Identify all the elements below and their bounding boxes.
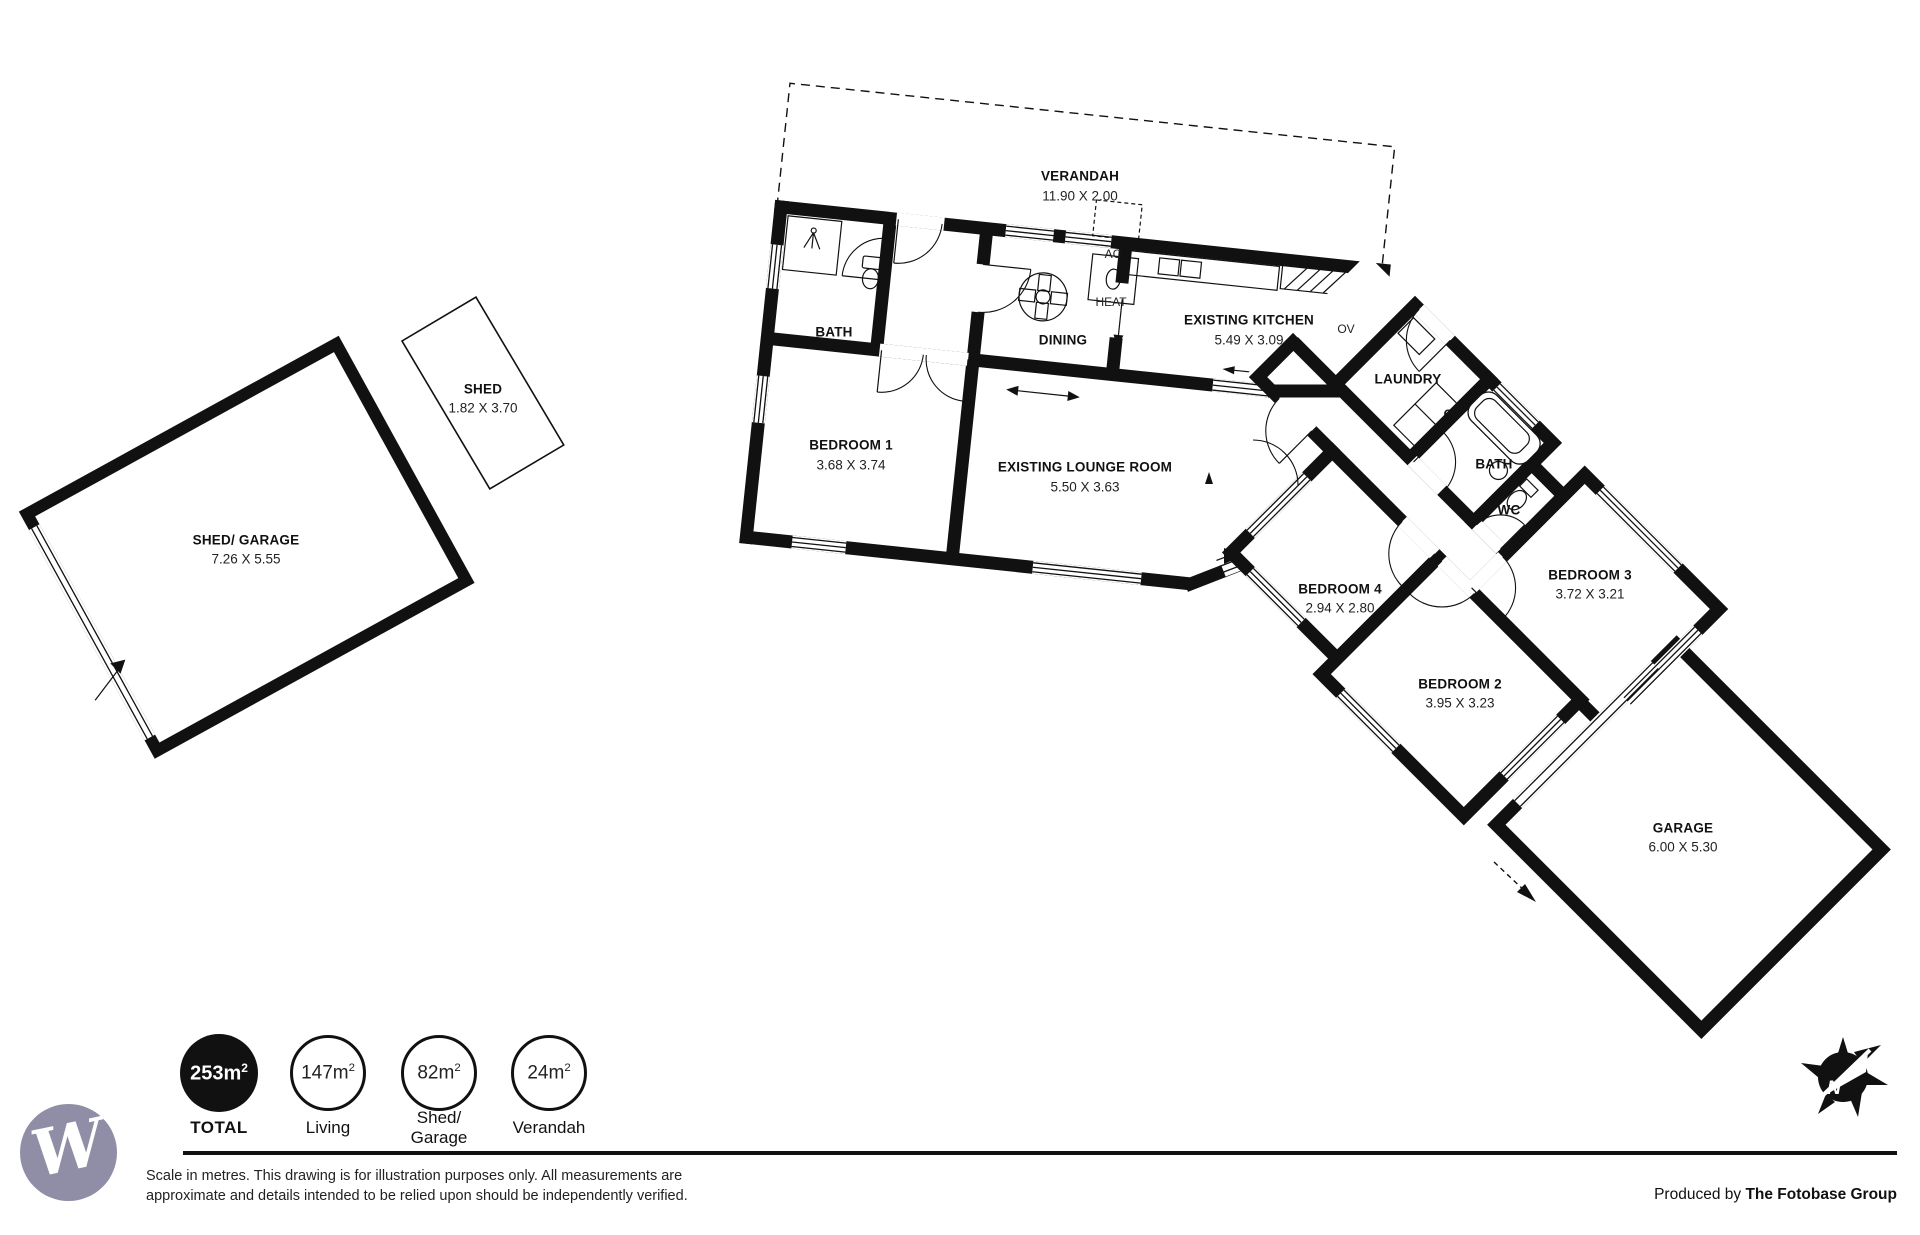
legend-shed-line1: Shed/ bbox=[411, 1108, 468, 1128]
legend-circle-living: 147m2 bbox=[290, 1035, 366, 1111]
label-bedroom3: BEDROOM 3 bbox=[1548, 568, 1632, 583]
floorplan-drawing: N VERANDAH 11.90 X 2.00 BATH BEDROOM 1 3… bbox=[0, 0, 1920, 1235]
arrow-garage-door bbox=[1494, 862, 1536, 902]
legend-circle-verandah: 24m2 bbox=[511, 1035, 587, 1111]
label-bedroom1: BEDROOM 1 bbox=[809, 438, 893, 453]
label-oven: OV bbox=[1337, 322, 1354, 336]
label-cupboard: C bbox=[1444, 407, 1453, 421]
legend-label-total: TOTAL bbox=[190, 1118, 248, 1138]
floorplan-page: N VERANDAH 11.90 X 2.00 BATH BEDROOM 1 3… bbox=[0, 0, 1920, 1235]
dims-lounge: 5.50 X 3.63 bbox=[1050, 480, 1119, 495]
legend-verandah-sup: 2 bbox=[564, 1062, 570, 1074]
disclaimer-line1: Scale in metres. This drawing is for ill… bbox=[146, 1166, 688, 1186]
dims-verandah: 11.90 X 2.00 bbox=[1042, 189, 1118, 204]
compass-icon: N bbox=[1801, 1037, 1888, 1117]
dims-shed-garage: 7.26 X 5.55 bbox=[211, 552, 280, 567]
label-bath2: BATH bbox=[1475, 457, 1512, 472]
legend-living-value: 147m bbox=[301, 1062, 349, 1083]
legend-shed-line2: Garage bbox=[411, 1128, 468, 1148]
label-bedroom2: BEDROOM 2 bbox=[1418, 677, 1502, 692]
legend-circle-shed-garage: 82m2 bbox=[401, 1035, 477, 1111]
legend-label-living: Living bbox=[306, 1118, 350, 1138]
label-shed-garage: SHED/ GARAGE bbox=[193, 533, 300, 548]
dims-shed: 1.82 X 3.70 bbox=[448, 401, 517, 416]
legend-shed-sup: 2 bbox=[454, 1062, 460, 1074]
label-verandah: VERANDAH bbox=[1041, 169, 1119, 184]
legend-label-verandah: Verandah bbox=[513, 1118, 586, 1138]
dims-bedroom4: 2.94 X 2.80 bbox=[1305, 601, 1374, 616]
label-bath1: BATH bbox=[815, 325, 852, 340]
label-bedroom4: BEDROOM 4 bbox=[1298, 582, 1382, 597]
legend-total-sup: 2 bbox=[241, 1061, 248, 1075]
label-shed: SHED bbox=[464, 382, 502, 397]
dims-garage: 6.00 X 5.30 bbox=[1648, 840, 1717, 855]
footer-divider bbox=[183, 1151, 1897, 1155]
label-heat: HEAT bbox=[1095, 295, 1127, 309]
dims-kitchen: 5.49 X 3.09 bbox=[1214, 333, 1283, 348]
compass-north-label: N bbox=[1827, 1078, 1842, 1099]
dims-bedroom1: 3.68 X 3.74 bbox=[816, 458, 886, 473]
label-laundry: LAUNDRY bbox=[1375, 372, 1442, 387]
dims-bedroom2: 3.95 X 3.23 bbox=[1425, 696, 1494, 711]
legend-living-sup: 2 bbox=[349, 1062, 355, 1074]
produced-by-prefix: Produced by bbox=[1654, 1186, 1745, 1203]
label-kitchen: EXISTING KITCHEN bbox=[1184, 313, 1314, 328]
disclaimer-text: Scale in metres. This drawing is for ill… bbox=[146, 1166, 688, 1206]
label-garage: GARAGE bbox=[1653, 821, 1713, 836]
label-wc: WC bbox=[1498, 503, 1521, 518]
legend-total-value: 253m bbox=[190, 1062, 241, 1084]
legend-shed-value: 82m bbox=[417, 1062, 454, 1083]
legend-verandah-value: 24m bbox=[527, 1062, 564, 1083]
w-logo: W bbox=[20, 1104, 117, 1201]
label-lounge: EXISTING LOUNGE ROOM bbox=[998, 460, 1172, 475]
dims-bedroom3: 3.72 X 3.21 bbox=[1555, 587, 1624, 602]
label-ac: AC bbox=[1105, 247, 1122, 261]
label-dining: DINING bbox=[1039, 333, 1087, 348]
w-logo-letter: W bbox=[25, 1104, 111, 1192]
legend-label-shed-garage: Shed/ Garage bbox=[411, 1108, 468, 1148]
legend-circle-total: 253m2 bbox=[180, 1034, 258, 1112]
produced-by: Produced by The Fotobase Group bbox=[1654, 1186, 1897, 1204]
disclaimer-line2: approximate and details intended to be r… bbox=[146, 1186, 688, 1206]
producer-name: The Fotobase Group bbox=[1745, 1186, 1897, 1203]
